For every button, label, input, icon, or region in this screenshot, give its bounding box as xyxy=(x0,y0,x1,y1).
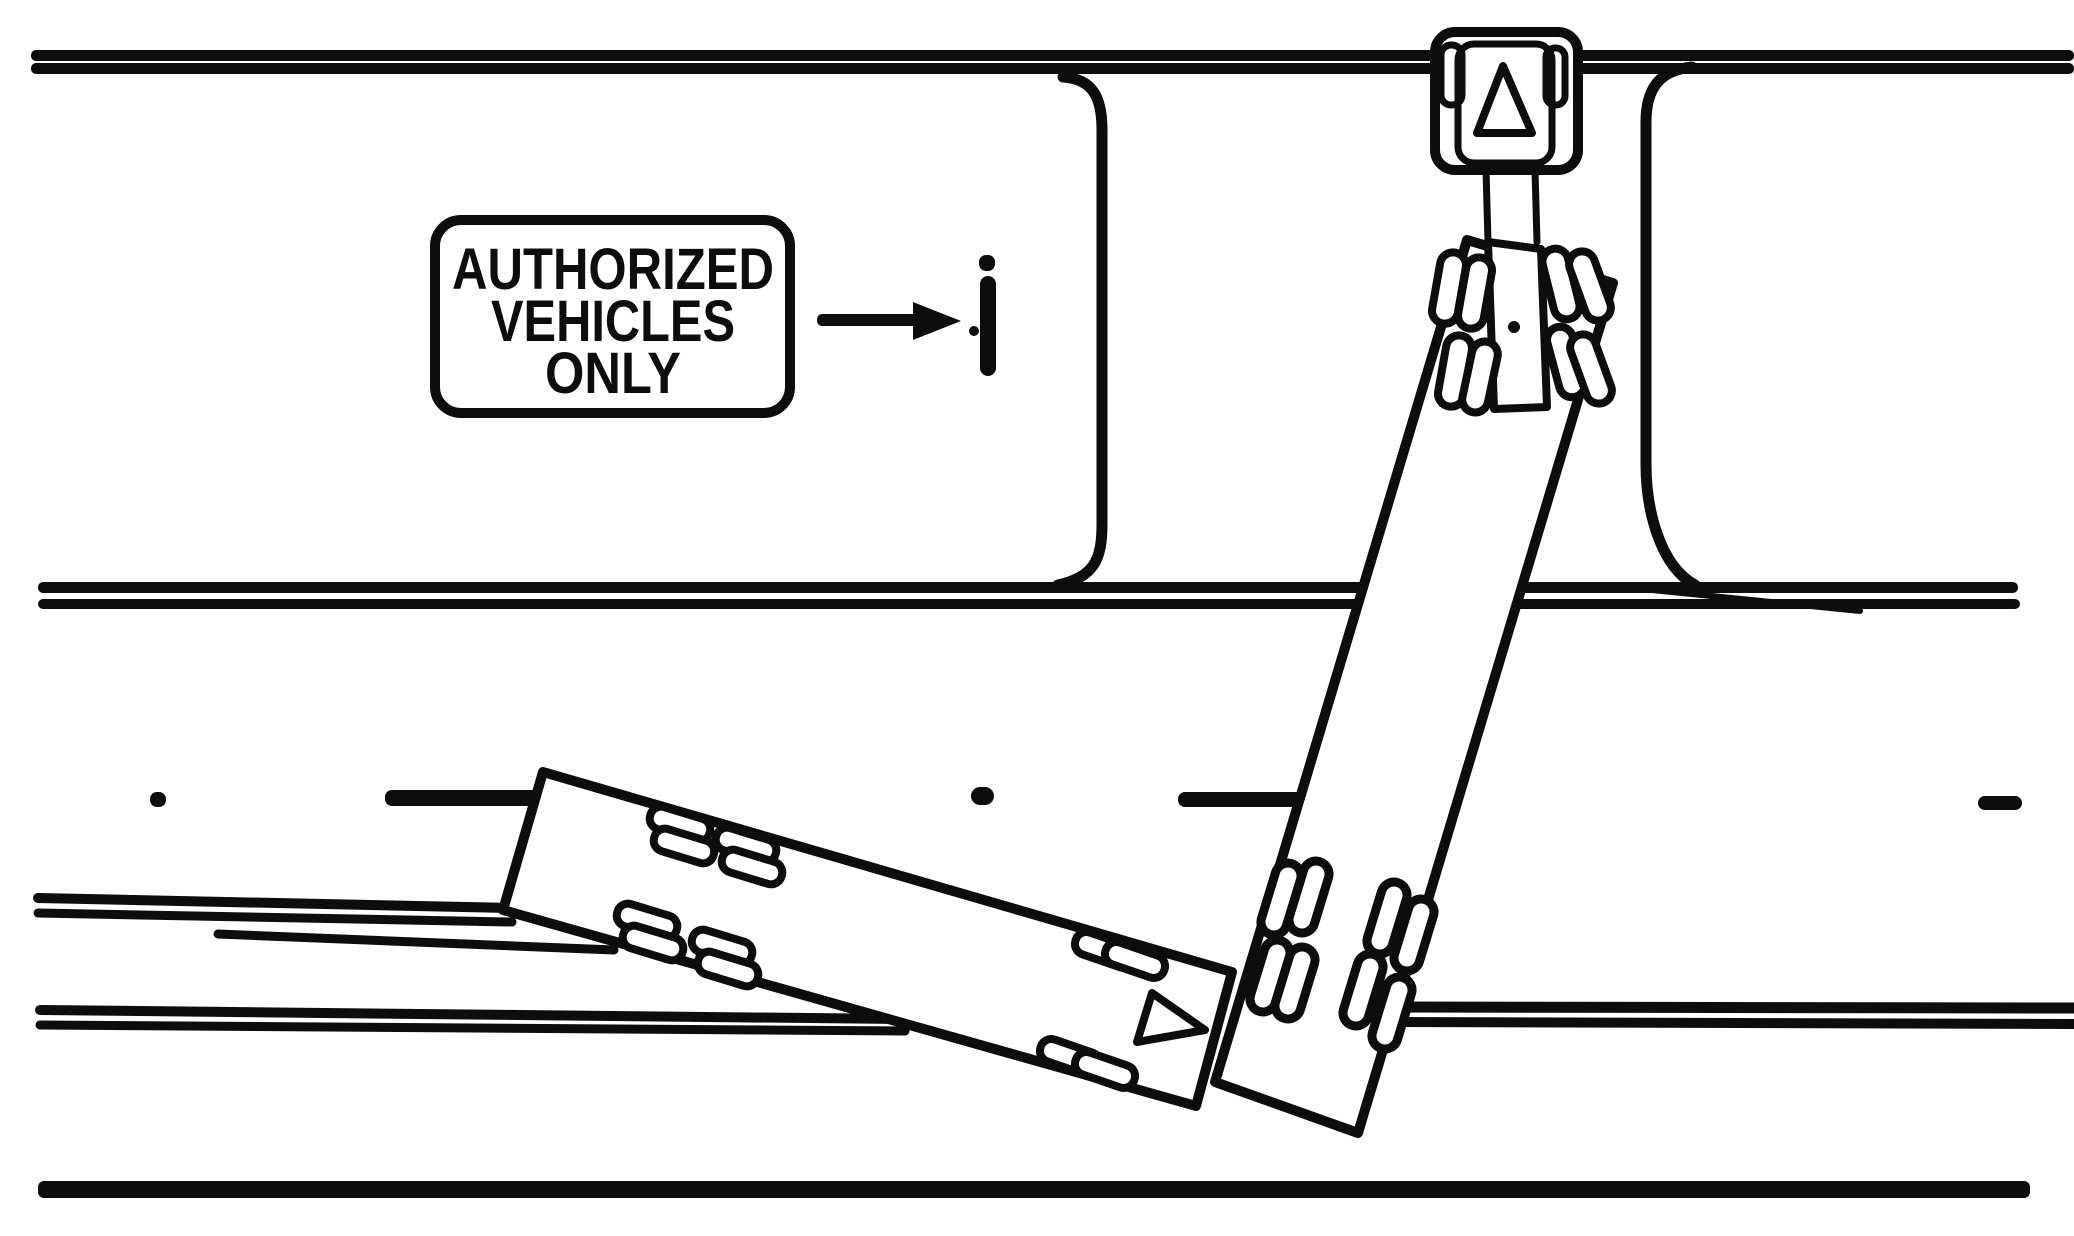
crossover-right-boundary xyxy=(1646,67,1695,585)
chassis-rail-right xyxy=(1535,170,1537,242)
lane-dash xyxy=(971,787,994,805)
median-crossover-diagram: AUTHORIZED VEHICLES ONLY xyxy=(0,0,2074,1236)
diagram-page: AUTHORIZED VEHICLES ONLY xyxy=(0,0,2074,1236)
arrow-right-icon-head xyxy=(913,302,961,340)
lane-dash xyxy=(150,792,166,807)
full-trailer-body xyxy=(503,772,1232,1106)
crossover-left-boundary xyxy=(1058,77,1102,585)
arrow-right-icon-shaft xyxy=(817,314,919,326)
lower-edge-line-b-left xyxy=(40,1025,905,1031)
sign-line-3: ONLY xyxy=(545,341,681,406)
post-segment-main xyxy=(980,276,996,376)
lane-edge-line-left-b xyxy=(38,913,512,922)
lane-dash xyxy=(1978,796,2022,810)
lane-dashes xyxy=(150,787,2022,810)
lane-dash xyxy=(1178,792,1308,807)
median-edge-line-lower xyxy=(38,599,2020,609)
lower-edge-line-a-right xyxy=(1396,1007,2074,1008)
median-edge-line-upper xyxy=(38,582,2018,593)
lane-dash xyxy=(385,790,545,806)
top-edge-line-inner xyxy=(31,63,2074,74)
sign-pointer xyxy=(817,302,961,340)
authorized-vehicles-only-sign: AUTHORIZED VEHICLES ONLY xyxy=(435,220,790,413)
truck-tractor xyxy=(1430,32,1616,415)
lane-edge-line-left-a xyxy=(38,898,512,908)
kingpin-dot xyxy=(1508,321,1520,333)
top-edge-line-outer xyxy=(31,50,2074,61)
lower-edge-line-a-left xyxy=(40,1010,900,1019)
bottom-edge-line xyxy=(38,1181,2030,1198)
post-base-mark xyxy=(969,326,979,336)
post-segment-top xyxy=(979,255,995,271)
full-trailer xyxy=(503,772,1232,1106)
chassis-rail-left xyxy=(1486,170,1488,242)
lane-taper-line xyxy=(218,934,614,950)
lower-edge-line-b-right xyxy=(1396,1022,2074,1024)
median-delineator-post xyxy=(969,255,996,376)
